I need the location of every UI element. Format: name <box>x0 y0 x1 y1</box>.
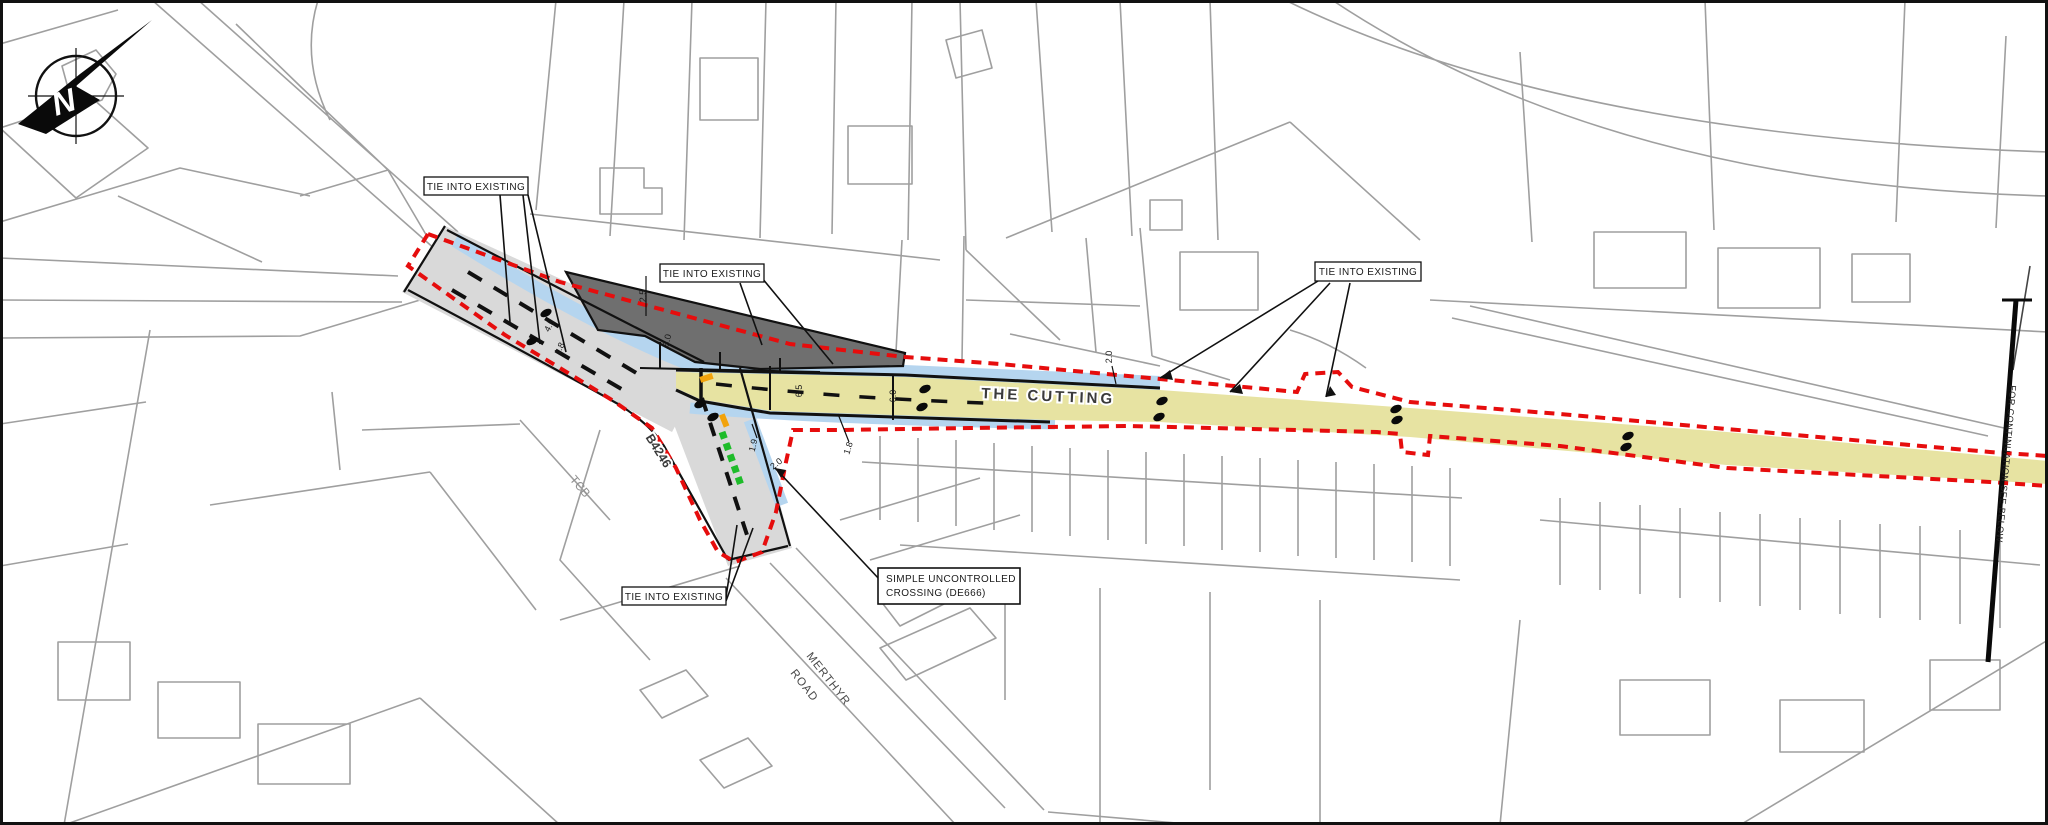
dimension: 2.0 <box>1104 351 1114 364</box>
dimension: 2.5 <box>638 290 648 303</box>
engineering-plan: 2.5 5.0 4.5 1.8 6.5 6.0 1.9 1.8 2.0 2.0 … <box>0 0 2048 825</box>
dimension: 1.8 <box>841 441 854 456</box>
leader-line <box>775 468 880 580</box>
road-label-b4246: B4246 <box>643 432 674 471</box>
base-map-top-left <box>0 0 458 338</box>
callout-label: TIE INTO EXISTING <box>1319 267 1417 278</box>
dimension: 6.0 <box>888 390 898 403</box>
base-map-merthyr-corridor <box>560 478 1200 825</box>
base-map-terraces-centre <box>862 436 1462 825</box>
dimension: 6.5 <box>794 385 804 398</box>
plan-canvas: 2.5 5.0 4.5 1.8 6.5 6.0 1.9 1.8 2.0 2.0 … <box>0 0 2048 825</box>
callout-label: TIE INTO EXISTING <box>625 592 723 603</box>
leader-lines <box>1160 281 1350 397</box>
callout-label-line1: SIMPLE UNCONTROLLED <box>886 574 1016 585</box>
callout-label: TIE INTO EXISTING <box>663 269 761 280</box>
callout-label-line2: CROSSING (DE666) <box>886 588 986 599</box>
base-map-top-right <box>1006 0 2048 436</box>
north-arrow: N <box>18 20 152 144</box>
callout-label: TIE INTO EXISTING <box>427 182 525 193</box>
base-map-bottom-left <box>0 330 650 825</box>
base-map-terraces-right <box>1500 498 2048 825</box>
